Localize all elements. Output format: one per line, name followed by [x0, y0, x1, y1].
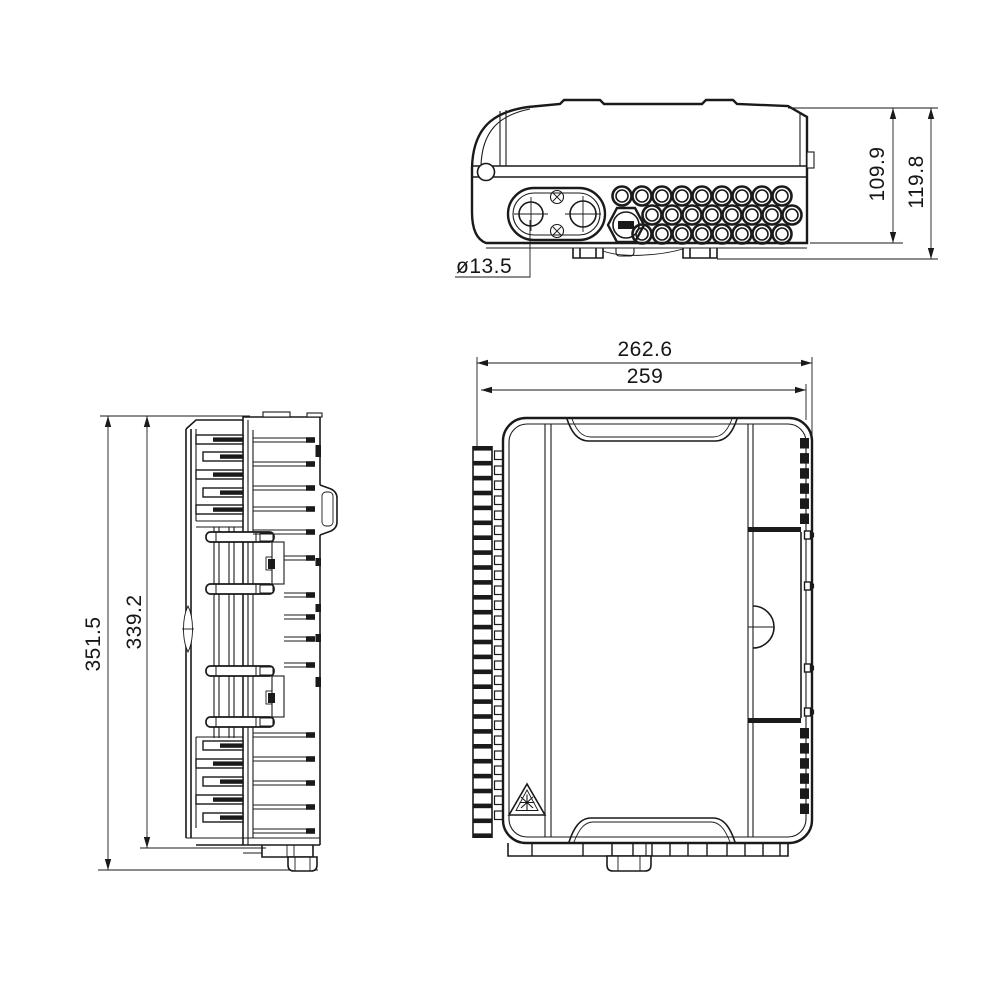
bottom-flange — [508, 843, 788, 871]
hinge-fin-bar — [220, 743, 243, 747]
hinge-square — [495, 706, 504, 715]
flange-outline — [508, 843, 788, 856]
edge-mark — [316, 445, 322, 457]
cable-port-inner — [716, 228, 728, 240]
body-rib — [253, 507, 315, 511]
body-rib-end — [306, 485, 315, 491]
hinge-rung — [474, 491, 492, 496]
body-rib-end — [306, 461, 315, 467]
hinge-block — [800, 453, 809, 464]
foot-right — [683, 248, 717, 258]
cable-port-inner — [686, 209, 698, 221]
top-tab-1 — [263, 412, 290, 417]
hinge-pin-end — [478, 164, 495, 181]
hinge-block — [800, 468, 809, 479]
hinge-square — [495, 616, 504, 625]
cable-port-inner — [646, 209, 658, 221]
hinge-fin-bar — [220, 779, 243, 783]
edge-mark — [316, 677, 322, 687]
body-rib-end — [306, 756, 315, 762]
body-ribs — [253, 437, 315, 834]
drawing-page: 109.9 119.8 ø13.5 262.6 259 — [0, 0, 1000, 1000]
hex-cable-gland — [608, 208, 644, 256]
cable-port-inner — [696, 190, 708, 202]
body-rib-end — [306, 804, 315, 810]
hinge-block — [800, 728, 809, 739]
hex-gland-slot — [618, 221, 634, 229]
dim-label-front-body-width: 259 — [627, 365, 664, 388]
flange-dividers — [532, 843, 780, 856]
hinge-square — [495, 586, 504, 595]
hinge-rung — [474, 625, 492, 630]
hinge-rung — [474, 714, 492, 719]
oval-entry-plate — [508, 188, 605, 240]
hinge-rung — [474, 744, 492, 749]
body-rib-end — [306, 780, 315, 786]
hinge-rung — [474, 476, 492, 481]
hinge-pin — [805, 582, 811, 590]
hinge-square — [495, 781, 504, 790]
bottom-grip-recess-inner — [574, 822, 730, 842]
hinge-square — [495, 481, 504, 490]
hinge-square — [495, 631, 504, 640]
body-rib-end — [306, 828, 315, 834]
hinge-pin — [805, 708, 811, 716]
hinge-rung — [474, 789, 492, 794]
cable-port-inner — [786, 209, 798, 221]
hinge-block — [800, 743, 809, 754]
latch-bars — [206, 532, 274, 727]
hinge-square — [495, 646, 504, 655]
hinge-rung — [474, 729, 492, 734]
hinge-square — [495, 766, 504, 775]
latch-tab-end — [807, 152, 814, 168]
hinge-block — [800, 758, 809, 769]
cable-port-inner — [756, 228, 768, 240]
hinge-fin-bar — [213, 761, 243, 765]
body-rib — [253, 805, 315, 809]
door-frame-right-lines — [748, 424, 753, 837]
door-latch-side — [748, 438, 814, 814]
hinge-square — [495, 601, 504, 610]
door-bottom-bar — [748, 718, 801, 723]
hinge-rung — [474, 506, 492, 511]
front-box-inner — [509, 424, 806, 837]
cable-port-inner — [746, 209, 758, 221]
dim-label-side-overall-height: 351.5 — [82, 616, 105, 671]
hinge-rung — [474, 819, 492, 824]
body-rib-end — [306, 732, 315, 738]
side-gland — [288, 857, 317, 871]
door-frame-left-lines — [545, 424, 551, 837]
hinge-rung — [474, 446, 492, 451]
cable-port-inner — [666, 209, 678, 221]
hinge-square — [495, 496, 504, 505]
body-rib — [253, 438, 315, 442]
body-rib-end — [306, 506, 315, 512]
cable-port-inner — [736, 190, 748, 202]
cable-port-inner — [656, 228, 668, 240]
latch-keeper-1-mark — [268, 559, 275, 569]
hinge-rung — [474, 610, 492, 615]
hinge-square — [495, 736, 504, 745]
side-foot — [262, 845, 313, 857]
body-rib-end — [306, 636, 315, 642]
cable-gland-bottom — [607, 843, 651, 871]
hinge-rung — [474, 655, 492, 660]
lid-seam-lines — [472, 166, 807, 177]
body-rib — [253, 733, 315, 737]
hinge-teeth-strip-left — [473, 446, 503, 838]
hinge-pin-cap — [811, 666, 815, 671]
hinge-rung — [474, 535, 492, 540]
hinge-block — [800, 773, 809, 784]
screw-top-cross — [553, 193, 561, 201]
latch-keeper-2-mark — [268, 693, 275, 703]
hinge-rung — [474, 595, 492, 600]
cable-port-inner — [776, 228, 788, 240]
hinge-fin-bar — [213, 437, 243, 441]
body-rib — [253, 462, 315, 466]
cable-port-inner — [726, 209, 738, 221]
edge-mark — [316, 634, 322, 642]
cable-port-inner — [616, 190, 628, 202]
hinge-rung — [474, 521, 492, 526]
foot-left — [573, 248, 603, 258]
cable-port-inner — [706, 209, 718, 221]
hinge-block — [800, 788, 809, 799]
body-rib-end — [306, 529, 315, 535]
body-rib-end — [306, 614, 315, 620]
side-view: 351.5 339.2 — [82, 412, 337, 871]
hinge-rung — [474, 550, 492, 555]
hinge-rung — [474, 640, 492, 645]
front-box-outer — [503, 418, 812, 843]
body-rib-end — [306, 437, 315, 443]
cable-port-inner — [676, 190, 688, 202]
cable-ports-grid — [613, 187, 802, 244]
body-rib-end — [306, 662, 315, 668]
hinge-rung — [474, 461, 492, 466]
cable-port-inner — [736, 228, 748, 240]
warning-triangle-icon — [509, 784, 545, 815]
front-view: 262.6 259 — [473, 338, 814, 871]
dim-label-front-overall-width: 262.6 — [617, 338, 672, 361]
dimension-259: 259 — [481, 365, 806, 420]
dimension-339-2: 339.2 — [123, 416, 266, 848]
latch-keepers — [266, 542, 284, 717]
hinge-rung — [474, 774, 492, 779]
hinge-rung — [474, 759, 492, 764]
cable-port-inner — [716, 190, 728, 202]
side-top-edge — [186, 417, 320, 429]
top-tab-2 — [307, 413, 322, 417]
hinge-fin-bar — [220, 490, 243, 494]
hinge-rung — [474, 804, 492, 809]
top-view: 109.9 119.8 ø13.5 — [455, 100, 938, 278]
cable-port-inner — [676, 228, 688, 240]
hinge-rungs — [474, 446, 492, 838]
screw-bottom-cross — [553, 227, 561, 235]
hinge-square — [495, 796, 504, 805]
hinge-square — [495, 466, 504, 475]
wall-clip-inner — [322, 492, 333, 526]
dim-label-top-overall-height: 119.8 — [905, 155, 928, 209]
cable-port-inner — [766, 209, 778, 221]
hinge-rung — [474, 670, 492, 675]
hinge-pin-cap — [811, 710, 815, 715]
hinge-rung — [474, 565, 492, 570]
bottom-wavy-edge — [603, 249, 683, 255]
edge-mark — [316, 604, 322, 612]
hinge-fin-bar — [213, 472, 243, 476]
entry-hole-left-centerlines — [514, 197, 548, 231]
dim-label-top-body-height: 109.9 — [866, 146, 889, 201]
hinge-square — [495, 811, 504, 820]
hinge-block — [800, 498, 809, 509]
top-view-feet — [573, 248, 717, 258]
hinge-pin-cap — [811, 533, 815, 538]
hinge-pin-cap — [811, 584, 815, 589]
gland-neck — [612, 843, 646, 856]
hinge-square — [495, 721, 504, 730]
hinge-square — [495, 526, 504, 535]
engineering-drawing: 109.9 119.8 ø13.5 262.6 259 — [0, 0, 1000, 1000]
hinge-rung — [474, 684, 492, 689]
hinge-square — [495, 661, 504, 670]
hinge-block — [800, 483, 809, 494]
hinge-square — [495, 751, 504, 760]
body-rib — [253, 781, 315, 785]
hinge-square — [495, 556, 504, 565]
hinge-pin — [805, 531, 811, 539]
latch-slide-rails — [214, 527, 234, 738]
body-rib-end — [306, 555, 315, 561]
hinge-square — [495, 451, 504, 460]
cable-port-inner — [636, 190, 648, 202]
dim-label-entry-hole-diameter: ø13.5 — [456, 255, 512, 278]
hinge-block — [800, 438, 809, 449]
wall-clip — [320, 485, 337, 535]
body-rib — [253, 829, 315, 833]
hinge-fin-bar — [213, 797, 243, 801]
door-top-bar — [748, 527, 801, 532]
hinge-fin-bar — [220, 815, 243, 819]
cable-port-inner — [776, 190, 788, 202]
cable-port-inner — [656, 190, 668, 202]
body-rib — [253, 757, 315, 761]
hinge-rung — [474, 580, 492, 585]
hinge-fin-bar — [220, 454, 243, 458]
hinge-block — [800, 804, 809, 815]
edge-mark — [316, 558, 322, 566]
top-grip-recess-inner — [572, 419, 732, 437]
hinge-rung — [474, 833, 492, 838]
hinge-square — [495, 571, 504, 580]
cable-port-inner — [696, 228, 708, 240]
hinge-pin — [805, 664, 811, 672]
top-grip-recess — [567, 419, 737, 441]
hinge-square — [495, 691, 504, 700]
hinge-square — [495, 511, 504, 520]
hinge-square — [495, 676, 504, 685]
body-rib — [253, 486, 315, 490]
hinge-rung — [474, 699, 492, 704]
cable-port-inner — [756, 190, 768, 202]
gland-nut — [607, 856, 651, 871]
hinge-square — [495, 541, 504, 550]
mating-face-line-2 — [248, 420, 253, 845]
hinge-inner-squares — [495, 451, 504, 820]
side-foot-details — [243, 845, 294, 857]
hinge-fin-bar — [213, 507, 243, 511]
top-view-inner-walls — [500, 110, 800, 166]
hinge-block — [800, 514, 809, 525]
body-rib-end — [306, 592, 315, 598]
dim-label-side-body-height: 339.2 — [123, 594, 146, 649]
